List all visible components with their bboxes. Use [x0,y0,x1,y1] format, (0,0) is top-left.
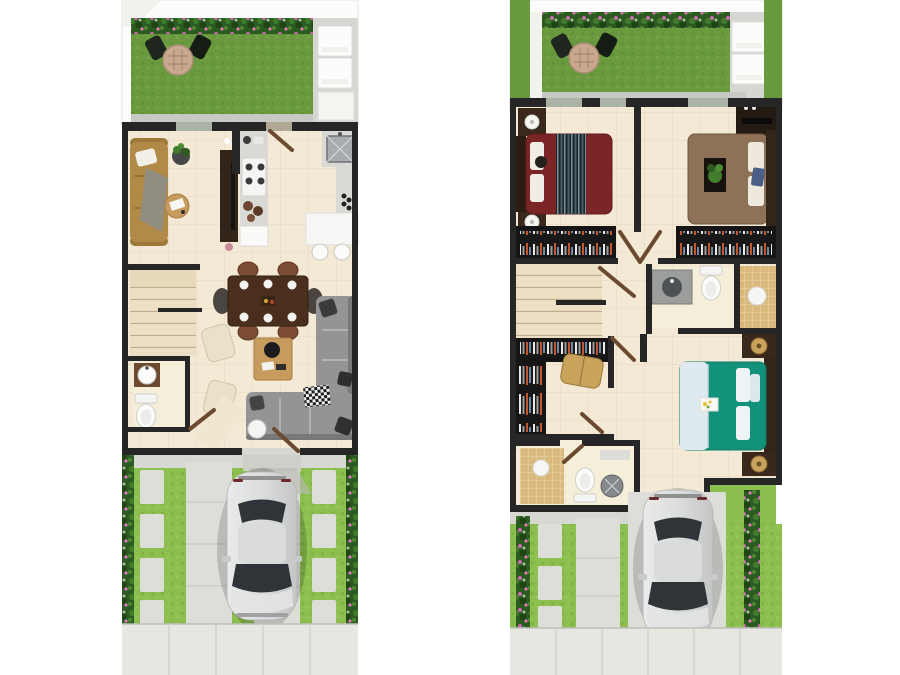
flower-bed-left [122,455,134,627]
breakfast-tray [700,398,718,411]
entry-opening [242,448,300,455]
table-lamp [751,456,767,472]
pillow [736,368,750,402]
vanity-shelf [600,450,630,460]
table-lamp [751,338,767,354]
page-background [0,0,900,675]
decor-hat [535,156,547,168]
shower-drain-light [748,287,766,305]
headboard [516,136,526,212]
dishwasher [240,226,268,246]
laundry-unit [318,58,352,88]
flower-hedge [131,18,323,34]
stair-rail [556,300,606,305]
laundry-unit [732,22,766,52]
laundry-unit [318,26,352,56]
ground-front-yard [122,455,358,675]
garden-window [176,122,212,131]
silver-car [222,472,302,620]
accent-pillow [751,167,765,186]
garden-sill [131,114,313,122]
silver-car [638,490,718,638]
flower-hedge [542,12,730,28]
powder-room [133,361,185,428]
side-table [248,420,266,438]
tv-screen [742,118,772,124]
pillow [530,174,544,202]
pillow [750,374,760,402]
upper-front-yard [510,485,782,675]
bedroom1-window [600,98,626,107]
ground-floor-plan [122,0,358,675]
sidewalk [510,628,782,675]
flower-bed-right [744,490,760,628]
flower-bed-left [516,516,530,628]
checkered-throw [303,385,331,408]
pillow [736,406,750,440]
facade-apron [122,455,358,468]
bed-runner [556,134,586,214]
upper-backyard-garden [510,0,782,112]
garden-sill [542,92,746,98]
sofa-pillow [249,395,265,411]
ground-backyard-garden [122,0,358,124]
side-grass-right [764,0,782,98]
kitchen-island [306,213,358,245]
stove [242,158,266,196]
toilet [700,266,722,300]
table-lamp [525,115,539,129]
utility-counter [318,92,354,120]
bar-stool [312,244,328,260]
sofa-pillow [337,371,354,388]
master-bathroom [520,446,634,506]
paver-squares [538,524,562,628]
upper-floor-plan [510,0,782,675]
mbath-door-opening [560,440,582,446]
flower-vase [225,243,233,251]
shared-bathroom [652,266,776,330]
shower-drain-light [533,460,549,476]
patio-wall [530,12,542,98]
upper-interior [510,98,782,512]
floor-plans-graphic [0,0,900,675]
toilet [135,394,157,428]
ground-interior [122,122,358,455]
bath-door-opening [652,328,678,334]
bedroom2-window [688,98,728,107]
flower-bed-right [346,455,358,627]
side-grass-left [510,0,530,98]
pillow [748,142,764,172]
laundry-unit [732,54,766,84]
stair-landing [130,270,196,286]
bar-stool [334,244,350,260]
driveway-strip [576,518,620,628]
toilet-tank [574,494,596,502]
sidewalk [122,624,358,675]
bedroom1-window [546,98,582,107]
